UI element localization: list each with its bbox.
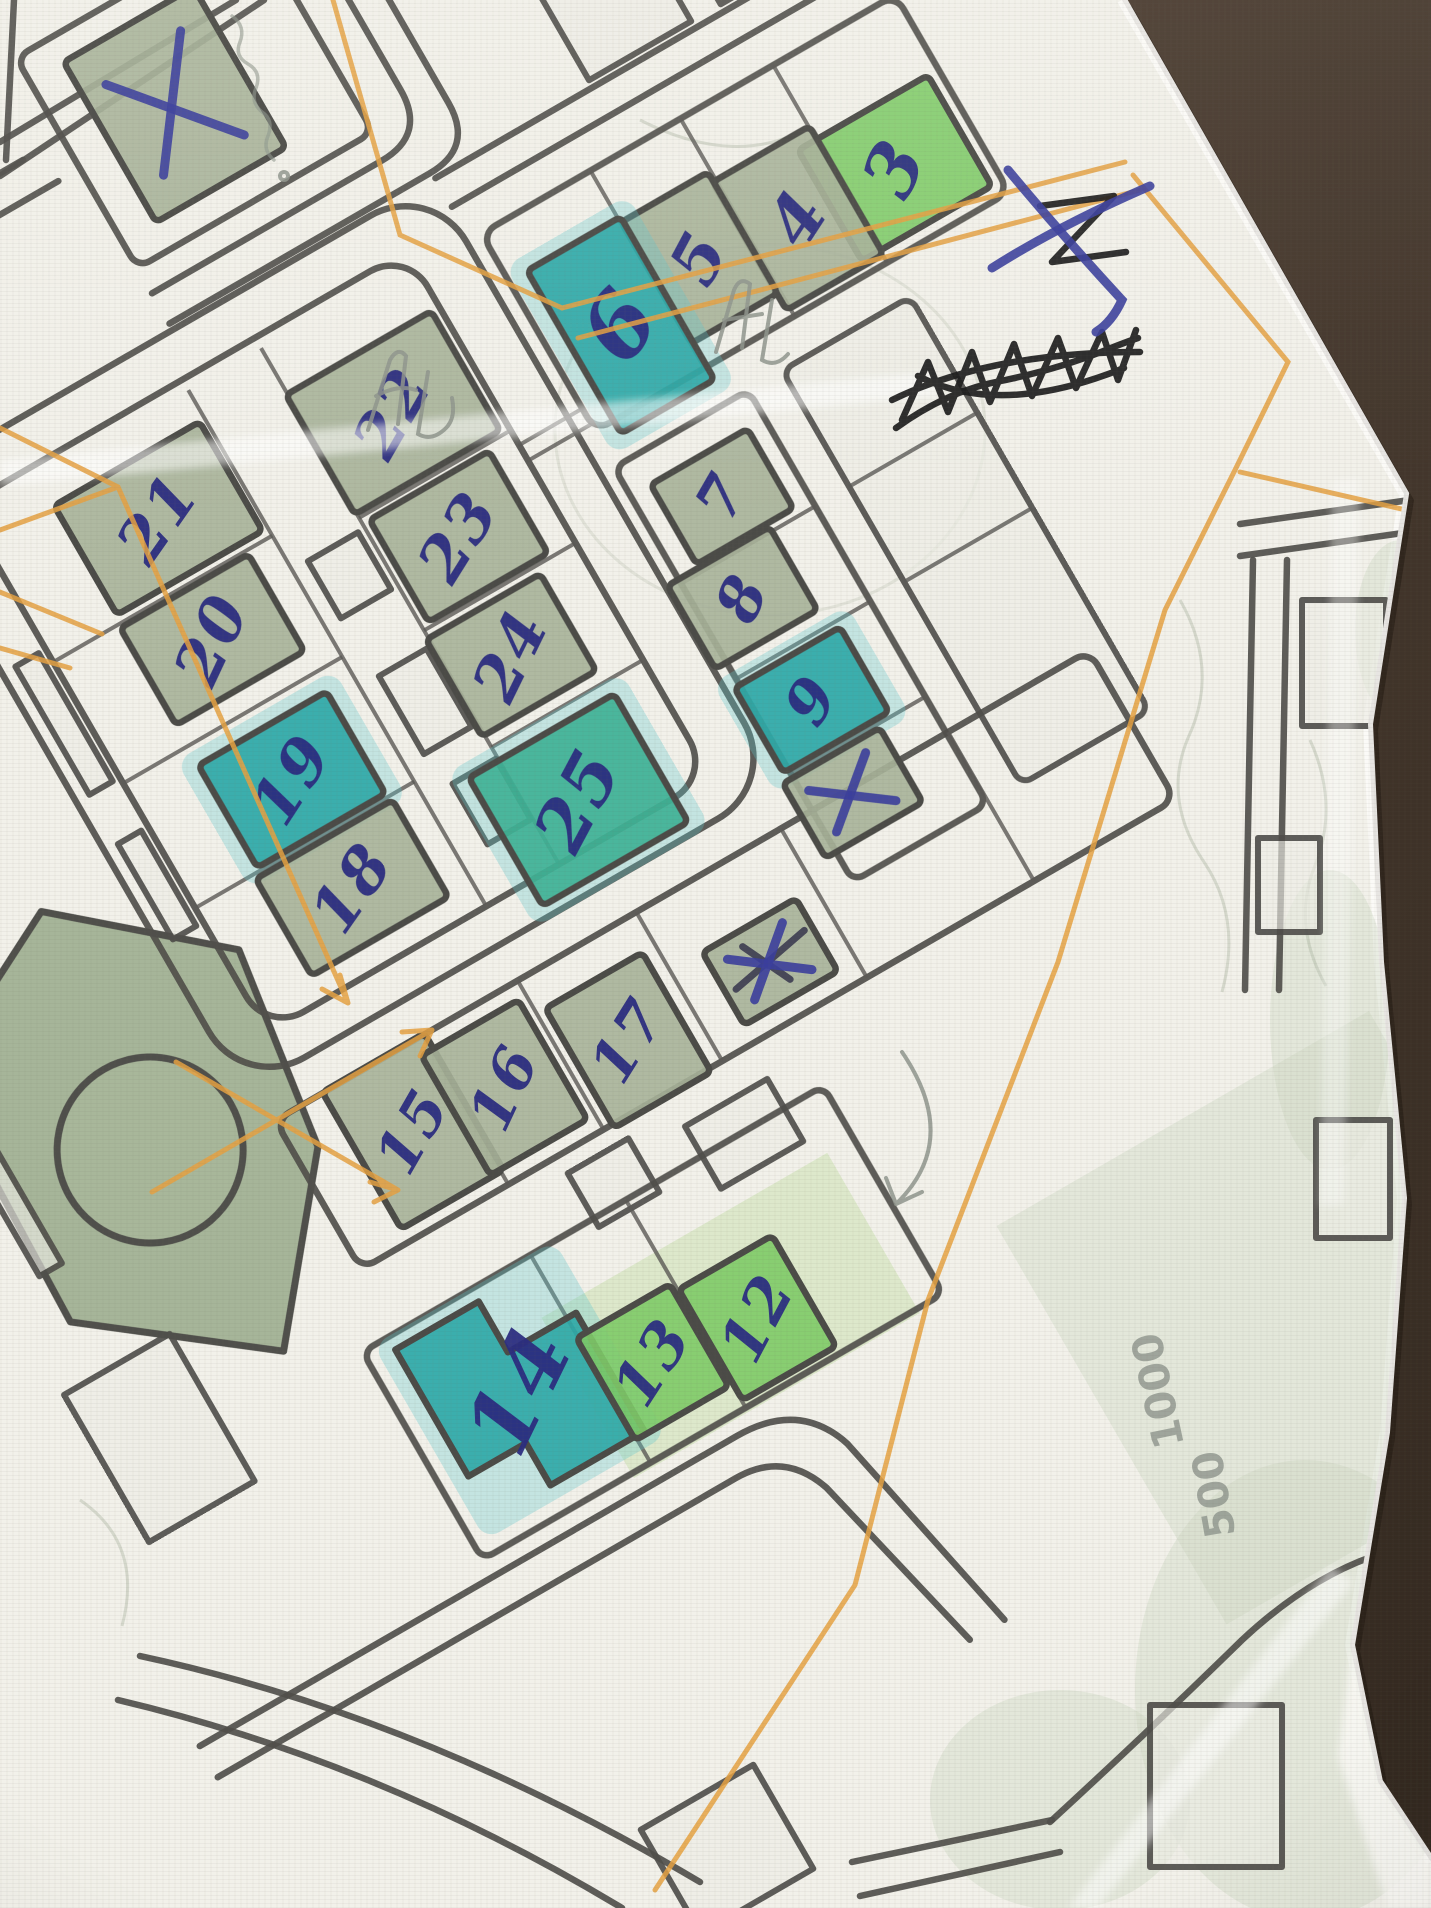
map-photo: 34567892122202324192518151617141312 xyxy=(0,0,1431,1908)
map-photo-svg: 34567892122202324192518151617141312 xyxy=(0,0,1431,1908)
